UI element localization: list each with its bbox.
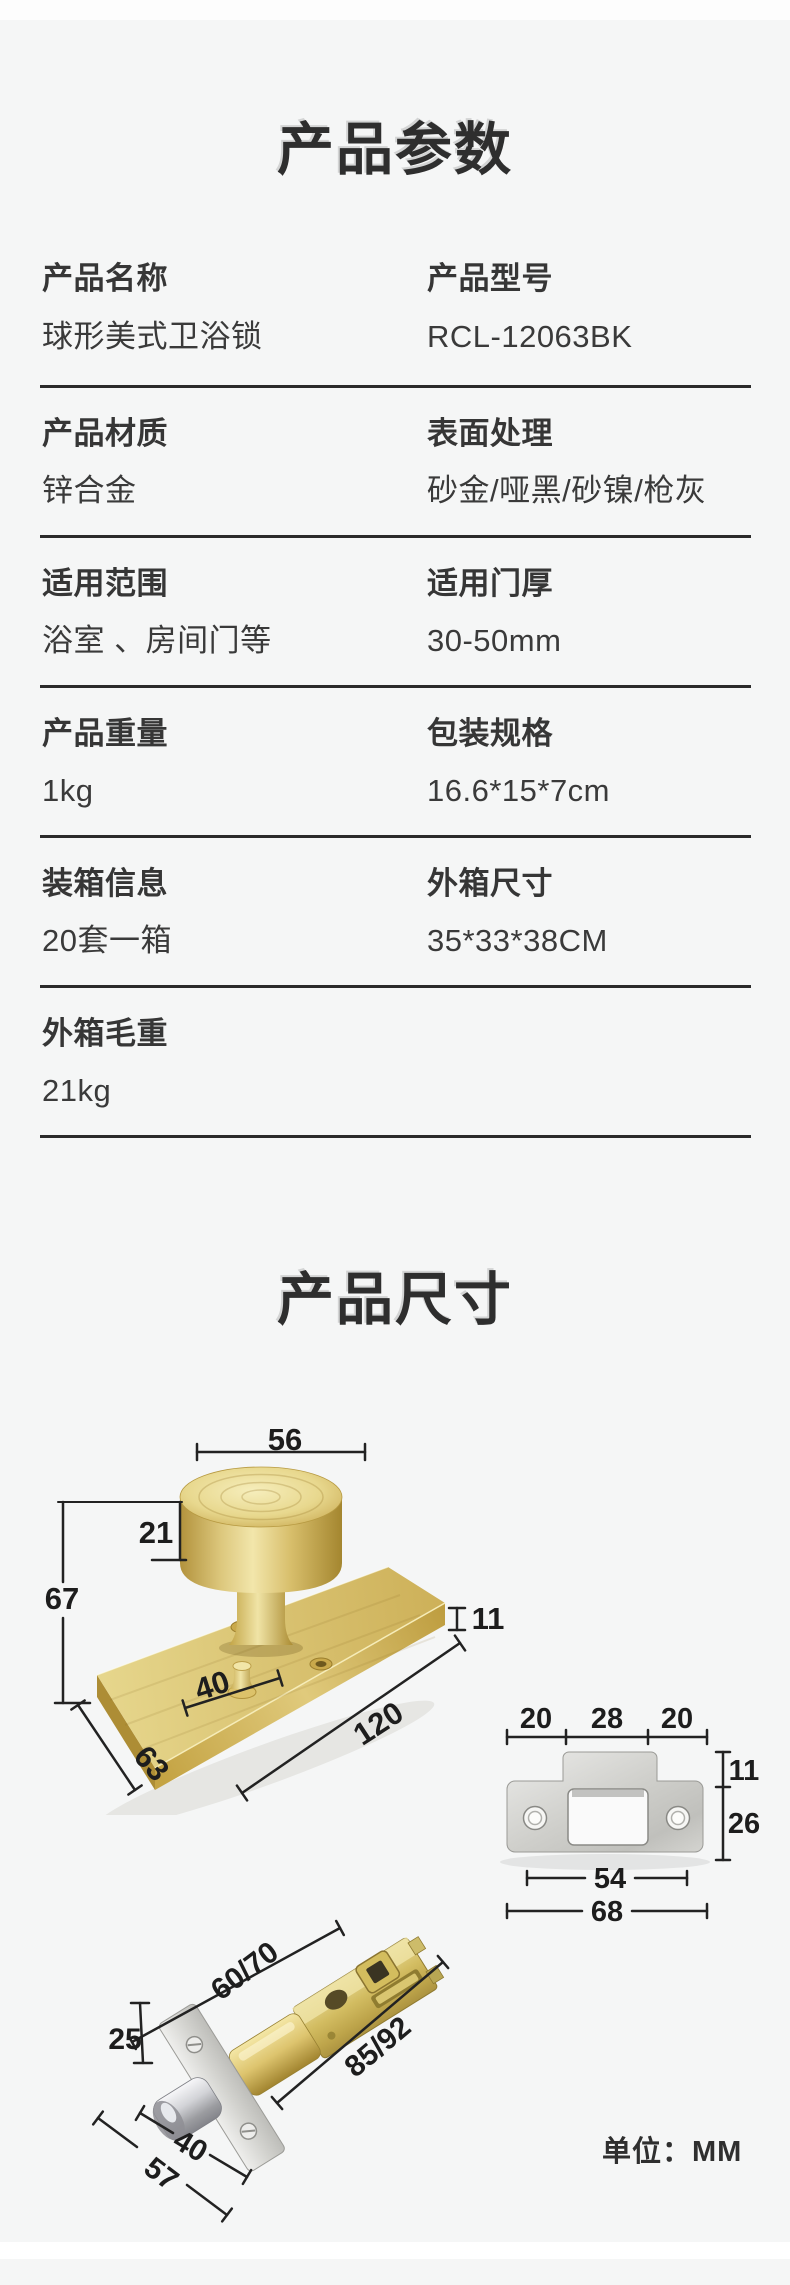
row-value: 35*33*38CM [427,925,608,956]
svg-text:67: 67 [45,1581,79,1616]
svg-text:20: 20 [520,1703,552,1735]
dim-strike-tab-height: 11 [716,1752,759,1787]
knob-screw-hole [310,1658,332,1670]
row-label: 产品重量 [42,718,168,749]
strike-latch-hole [568,1789,648,1845]
row-value: 16.6*15*7cm [427,775,610,806]
row-label: 产品型号 [427,263,553,294]
dim-strike-top-segments: 20 28 20 [507,1703,707,1744]
dimensions-title: 产品尺寸 [0,1272,790,1329]
svg-text:68: 68 [591,1896,623,1928]
row-value: 1kg [42,775,93,806]
row-label: 外箱尺寸 [427,868,553,899]
divider [40,535,751,538]
svg-text:25: 25 [108,2023,141,2056]
row-label: 产品材质 [42,418,168,449]
row-label: 产品名称 [42,263,168,294]
row-label: 表面处理 [427,418,553,449]
svg-text:57: 57 [138,2151,185,2197]
divider [40,1135,751,1138]
row-label: 装箱信息 [42,868,168,899]
strike-plate [500,1752,710,1870]
row-value: 20套一箱 [42,925,172,956]
dim-latch-plate-width: 25 [108,2003,152,2063]
unit-note: 单位：MM [602,2128,742,2170]
top-strip [0,0,790,20]
row-value: 球形美式卫浴锁 [42,321,263,352]
dim-strike-body-height: 26 [716,1787,760,1860]
strike-screw-hole [524,1807,547,1830]
row-value: 锌合金 [42,475,137,506]
row-value: 砂金/哑黑/砂镍/枪灰 [427,475,706,506]
svg-text:26: 26 [728,1808,760,1840]
product-spec-page: 产品参数 产品名称 产品型号 球形美式卫浴锁 RCL-12063BK 产品材质 … [0,0,790,2285]
bottom-strip [0,2242,790,2259]
row-label: 包装规格 [427,718,553,749]
svg-text:54: 54 [594,1863,626,1895]
divider [40,985,751,988]
divider [40,685,751,688]
strike-screw-hole [667,1807,690,1830]
dim-knob-total-height: 67 [45,1502,90,1703]
row-value: 21kg [42,1075,111,1106]
divider [40,385,751,388]
svg-text:20: 20 [661,1703,693,1735]
row-label: 适用门厚 [427,568,553,599]
row-label: 适用范围 [42,568,168,599]
svg-text:21: 21 [139,1515,173,1550]
dim-plate-thickness: 11 [449,1601,504,1636]
row-value: RCL-12063BK [427,321,632,352]
row-label: 外箱毛重 [42,1018,168,1049]
row-value: 30-50mm [427,625,561,656]
svg-text:60/70: 60/70 [205,1935,285,2007]
svg-text:11: 11 [729,1755,760,1787]
svg-text:56: 56 [268,1422,302,1457]
strike-hole-lip [572,1790,644,1797]
dim-knob-top-width: 56 [197,1422,365,1460]
divider [40,835,751,838]
knob-drawing: 56 21 67 11 40 [30,1415,510,1815]
latch-drawing: 60/70 85/92 25 40 57 [25,1905,475,2235]
dim-strike-outer-width: 68 [507,1896,707,1928]
dim-knob-head-height: 21 [58,1502,186,1560]
svg-text:11: 11 [472,1601,505,1636]
row-value: 浴室 、房间门等 [42,625,272,656]
svg-text:28: 28 [591,1703,623,1735]
strike-plate-drawing: 20 28 20 11 26 54 68 [490,1690,780,1940]
page-title: 产品参数 [0,122,790,179]
